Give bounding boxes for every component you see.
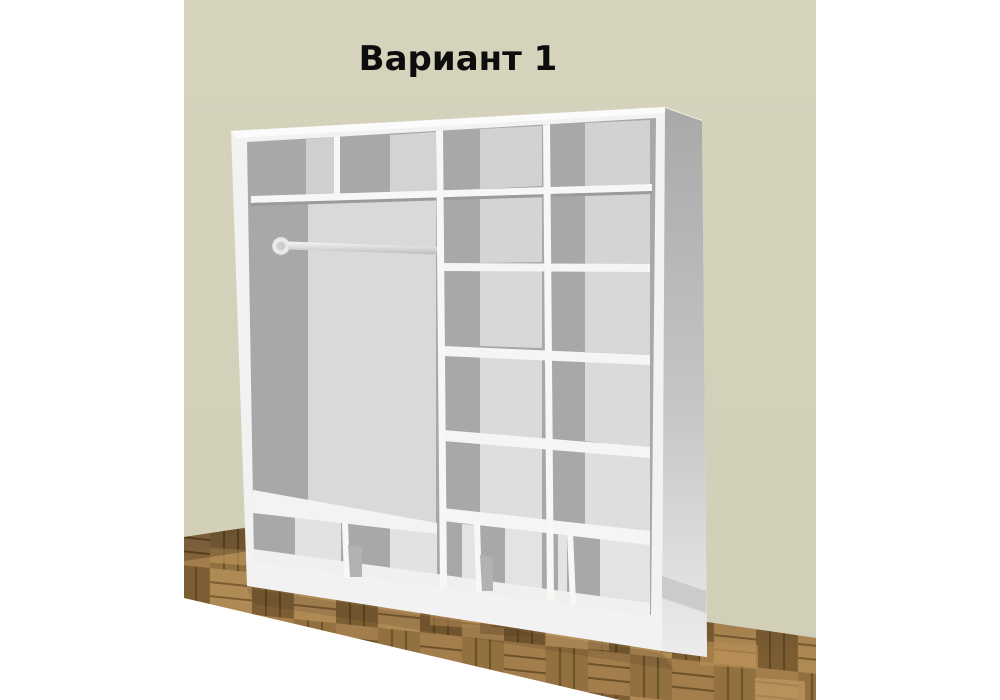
back-panel xyxy=(480,355,542,440)
back-panel-top-cell-a xyxy=(306,137,334,198)
back-panel xyxy=(480,266,542,348)
back-panel xyxy=(480,126,542,189)
wardrobe-cabinet xyxy=(231,107,707,657)
back-panel xyxy=(585,448,650,536)
bottom-divider-shadow xyxy=(480,555,493,591)
render-stage: Вариант 1 xyxy=(0,0,1000,700)
back-panel xyxy=(585,186,650,266)
variant-title: Вариант 1 xyxy=(359,39,558,79)
back-panel xyxy=(585,268,650,355)
back-panel xyxy=(585,120,650,187)
back-panel-top-cell-b xyxy=(390,132,436,196)
bottom-divider-shadow xyxy=(348,545,362,577)
back-panel xyxy=(480,441,542,522)
back-panel xyxy=(585,359,650,449)
cabinet-right-side-panel xyxy=(662,108,707,657)
back-panel xyxy=(480,188,542,263)
wardrobe-3d-render: Вариант 1 xyxy=(0,0,1000,700)
rod-flange-center xyxy=(277,242,286,251)
top-row-divider xyxy=(334,136,340,198)
